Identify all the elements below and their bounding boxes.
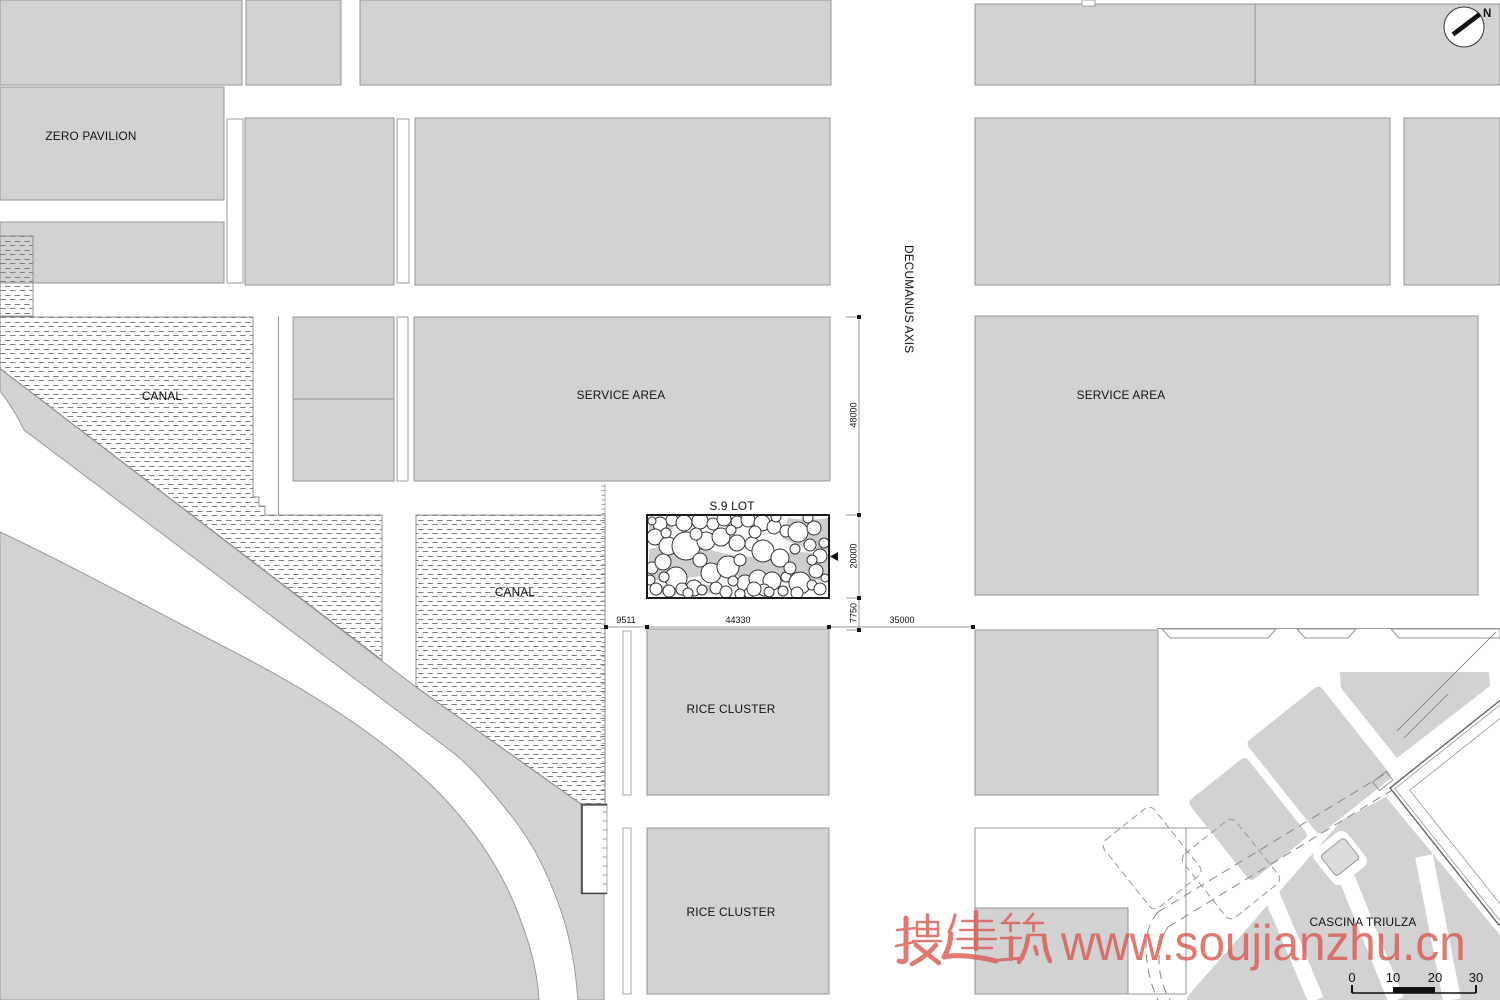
svg-text:CANAL: CANAL xyxy=(142,389,183,403)
svg-text:48000: 48000 xyxy=(849,402,859,427)
svg-text:10: 10 xyxy=(1386,970,1400,985)
svg-text:DECUMANUS AXIS: DECUMANUS AXIS xyxy=(902,245,916,353)
svg-text:SERVICE AREA: SERVICE AREA xyxy=(577,388,666,402)
svg-text:7750: 7750 xyxy=(849,603,859,623)
svg-text:RICE CLUSTER: RICE CLUSTER xyxy=(687,905,776,919)
svg-text:20000: 20000 xyxy=(849,543,859,568)
svg-text:ZERO PAVILION: ZERO PAVILION xyxy=(45,129,136,143)
svg-text:0: 0 xyxy=(1348,970,1355,985)
svg-text:SERVICE AREA: SERVICE AREA xyxy=(1077,388,1166,402)
svg-text:S.9 LOT: S.9 LOT xyxy=(709,499,754,513)
svg-text:N: N xyxy=(1483,8,1491,20)
svg-text:44330: 44330 xyxy=(725,615,750,625)
svg-text:35000: 35000 xyxy=(889,615,914,625)
svg-text:RICE CLUSTER: RICE CLUSTER xyxy=(687,702,776,716)
svg-text:CANAL: CANAL xyxy=(495,585,536,599)
svg-text:9511: 9511 xyxy=(616,615,635,625)
svg-text:20: 20 xyxy=(1428,970,1442,985)
svg-text:www.soujianzhu.cn: www.soujianzhu.cn xyxy=(1060,916,1466,971)
svg-text:30: 30 xyxy=(1469,970,1483,985)
